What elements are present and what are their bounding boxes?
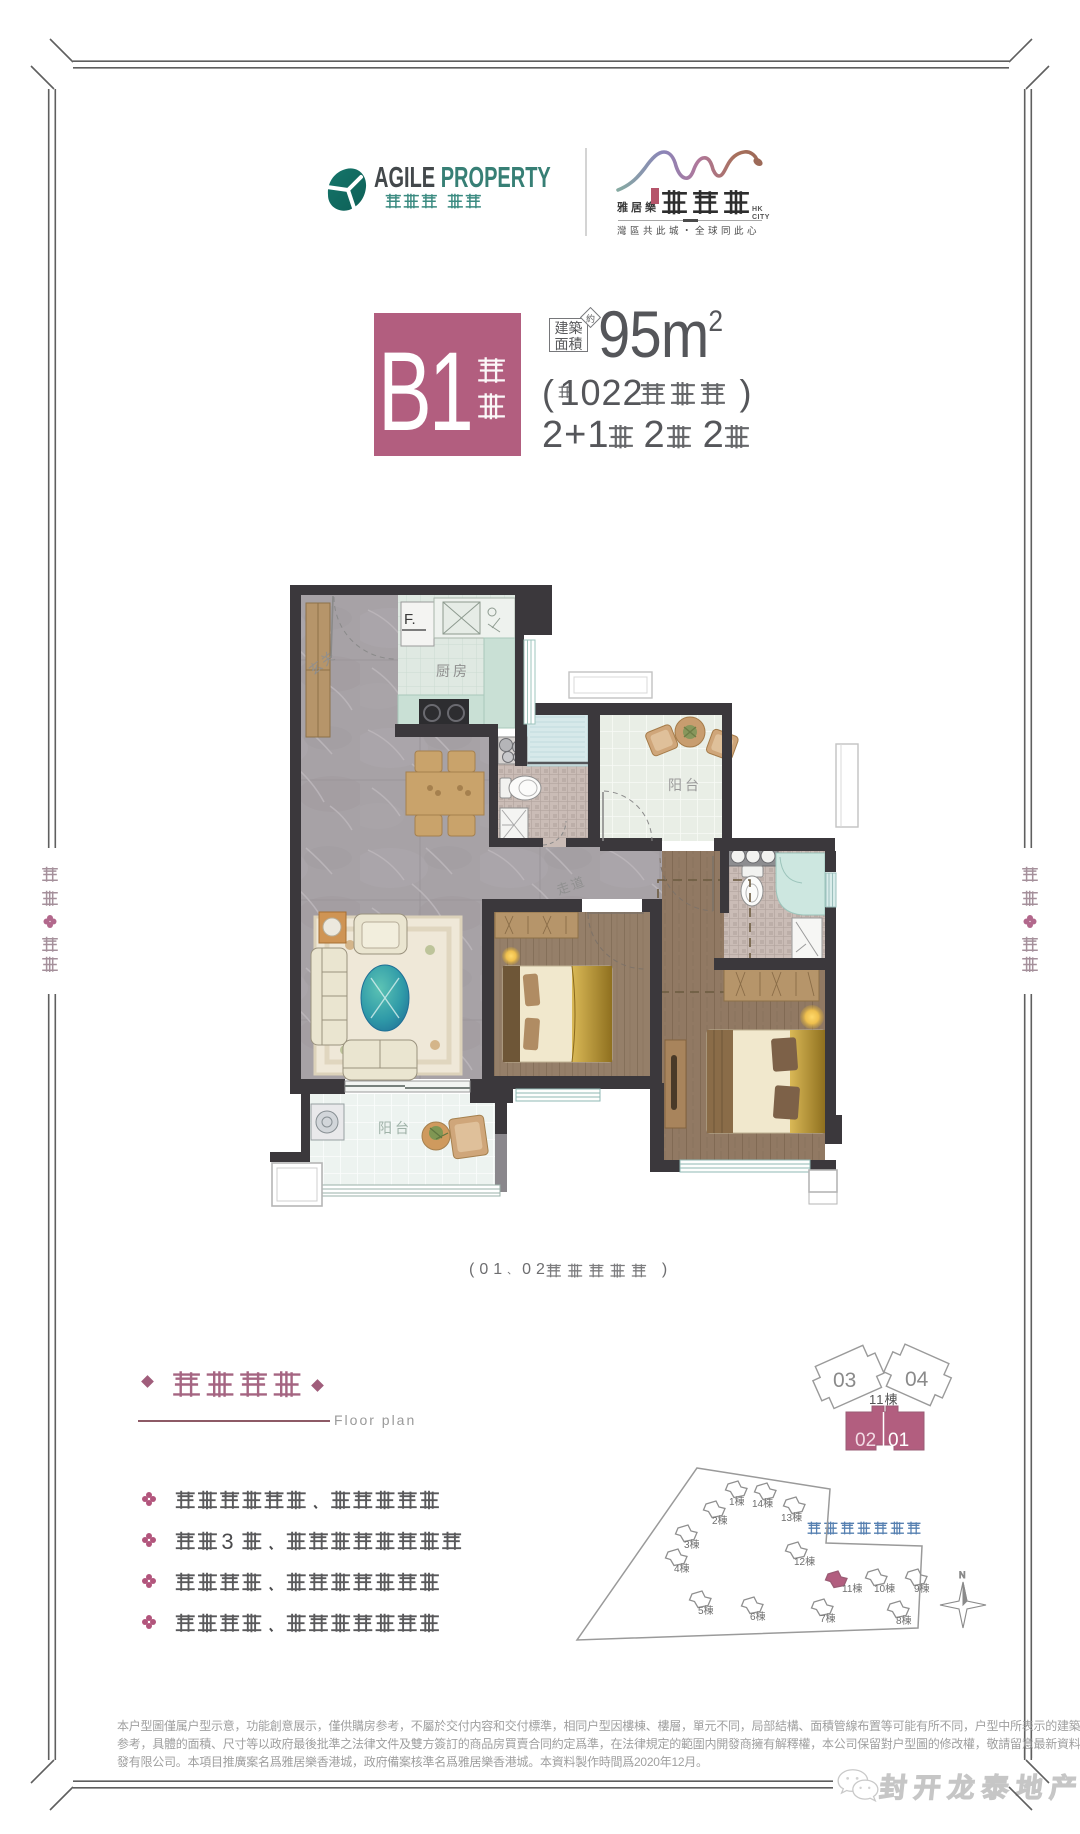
svg-text:13棟: 13棟 xyxy=(781,1511,802,1524)
svg-text:04: 04 xyxy=(905,1368,929,1391)
svg-text:7棟: 7棟 xyxy=(820,1612,836,1625)
svg-text:10棟: 10棟 xyxy=(874,1582,895,1595)
svg-text:3棟: 3棟 xyxy=(684,1538,700,1551)
svg-text:N: N xyxy=(959,1570,966,1580)
svg-text:14棟: 14棟 xyxy=(752,1497,773,1510)
svg-text:12棟: 12棟 xyxy=(794,1555,815,1568)
svg-text:6棟: 6棟 xyxy=(750,1610,766,1623)
svg-text:11棟: 11棟 xyxy=(869,1392,899,1407)
svg-text:01: 01 xyxy=(888,1430,909,1451)
svg-text:9棟: 9棟 xyxy=(914,1582,930,1595)
svg-text:2棟: 2棟 xyxy=(712,1514,728,1527)
svg-text:02: 02 xyxy=(855,1430,876,1451)
svg-text:8棟: 8棟 xyxy=(896,1614,912,1627)
svg-text:3: 3 xyxy=(221,1529,233,1554)
svg-text:03: 03 xyxy=(833,1369,856,1392)
svg-text:4棟: 4棟 xyxy=(674,1562,690,1575)
svg-text:1棟: 1棟 xyxy=(729,1495,745,1508)
svg-text:5棟: 5棟 xyxy=(698,1604,714,1617)
svg-text:11棟: 11棟 xyxy=(842,1582,862,1595)
